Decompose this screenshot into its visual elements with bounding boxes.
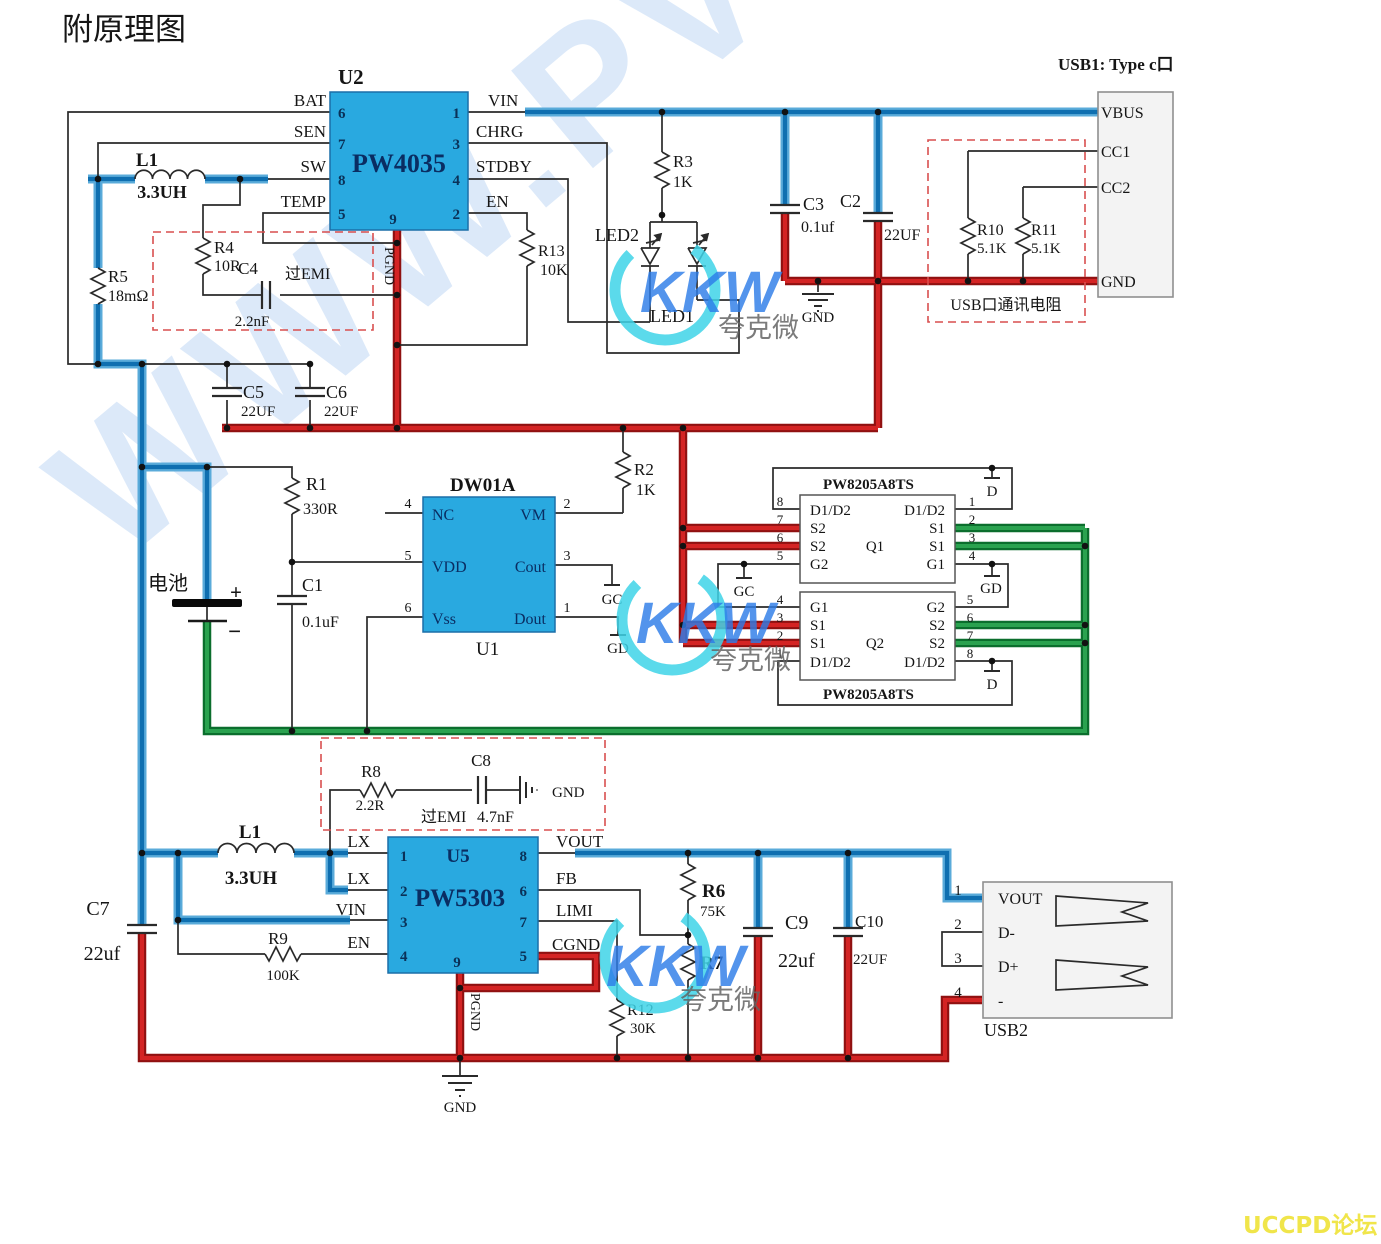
r2-val: 1K xyxy=(636,482,656,499)
u5-pin4-num: 4 xyxy=(400,949,408,965)
c2-val: 22UF xyxy=(884,227,921,244)
r4-ref: R4 xyxy=(214,238,234,257)
u2-pin7-num: 7 xyxy=(338,137,346,153)
u1-pin6-num: 6 xyxy=(405,601,412,616)
u2-pin2-num: 2 xyxy=(453,207,461,223)
q1-pin3: 3 xyxy=(969,530,976,545)
battery-minus: − xyxy=(228,619,241,644)
gnd-top-icon xyxy=(802,294,834,311)
r9-val: 100K xyxy=(266,968,300,984)
gnd-bottom-label: GND xyxy=(444,1100,477,1116)
u5-pin3-num: 3 xyxy=(400,915,408,931)
c4-val: 2.2nF xyxy=(235,314,270,330)
l1-top-val: 3.3UH xyxy=(137,182,187,202)
u5-pin7-num: 7 xyxy=(520,915,528,931)
r11-ref: R11 xyxy=(1031,222,1057,239)
r4-val: 10R xyxy=(214,258,241,275)
u5-ref: U5 xyxy=(446,846,469,867)
q1-pin2: 2 xyxy=(969,512,976,527)
c7-val: 22uf xyxy=(84,943,121,965)
u2-pgnd-label: PGND xyxy=(381,247,396,285)
r6-val: 75K xyxy=(700,904,726,920)
usb2-vout: VOUT xyxy=(998,891,1043,908)
q2-s2b: S2 xyxy=(929,636,945,652)
u2-pin-en: EN xyxy=(486,192,509,211)
kkw-sub-text-3: 夸克微 xyxy=(680,985,761,1015)
c3-val: 0.1uf xyxy=(801,219,835,236)
q1-g1: G1 xyxy=(927,557,945,573)
q2-s1a: S1 xyxy=(810,618,826,634)
q2-pin8: 8 xyxy=(967,646,974,661)
q1-ref: Q1 xyxy=(866,539,884,555)
c8-val: 4.7nF xyxy=(477,809,514,826)
c1-ref: C1 xyxy=(302,575,323,595)
c7-ref: C7 xyxy=(86,898,109,920)
usb1-cc2: CC2 xyxy=(1101,180,1130,197)
l1-bot-val: 3.3UH xyxy=(225,868,277,889)
r9-ref: R9 xyxy=(268,929,288,948)
u2-pin9-num: 9 xyxy=(389,212,397,228)
c9-ref: C9 xyxy=(785,912,808,934)
u5-pin-fb: FB xyxy=(556,869,577,888)
c9-val: 22uf xyxy=(778,950,815,972)
q1-s2b: S2 xyxy=(810,539,826,555)
c6-ref: C6 xyxy=(326,382,347,402)
r2-ref: R2 xyxy=(634,460,654,479)
usb1-title: USB1: Type c口 xyxy=(1058,55,1174,74)
usb1-cc1: CC1 xyxy=(1101,144,1130,161)
u1-pin-vdd: VDD xyxy=(432,559,467,576)
q2-part: PW8205A8TS xyxy=(823,687,914,703)
q1-pin6: 6 xyxy=(777,530,784,545)
r10-ref: R10 xyxy=(977,222,1004,239)
inductor-l1-top xyxy=(135,170,205,179)
u5-pin6-num: 6 xyxy=(520,884,528,900)
kkw-sub-text-1: 夸克微 xyxy=(718,313,799,343)
kkw-watermark-2: KKW 夸克微 xyxy=(602,550,791,689)
q2-pin5: 5 xyxy=(967,592,974,607)
u2-pin8-num: 8 xyxy=(338,173,346,189)
u1-pin5-num: 5 xyxy=(405,549,412,564)
usb2-ref: USB2 xyxy=(984,1020,1028,1040)
gnd-top-label: GND xyxy=(802,310,835,326)
u1-pin4-num: 4 xyxy=(405,497,412,512)
schematic-canvas: WWW.PV xyxy=(0,0,1381,1244)
schematic-page: WWW.PV xyxy=(0,0,1381,1244)
u2-pin-chrg: CHRG xyxy=(476,122,523,141)
u5-pin5-num: 5 xyxy=(520,949,528,965)
q1-pin8: 8 xyxy=(777,494,784,509)
u1-pin-cout: Cout xyxy=(515,559,547,576)
u5-pin-vin: VIN xyxy=(336,900,366,919)
u2-pin3-num: 3 xyxy=(453,137,461,153)
u1-pin3-num: 3 xyxy=(564,549,571,564)
q1-d12-r: D1/D2 xyxy=(904,503,945,519)
c8-ref: C8 xyxy=(471,751,491,770)
r5-ref: R5 xyxy=(108,267,128,286)
u1-pin-vm: VM xyxy=(520,507,546,524)
u5-pin-en: EN xyxy=(347,933,370,952)
q2-pin6: 6 xyxy=(967,610,974,625)
u2-pin-stdby: STDBY xyxy=(476,157,532,176)
emi-top-label: 过EMI xyxy=(285,265,330,283)
q1-part: PW8205A8TS xyxy=(823,477,914,493)
u1-pin-vss: Vss xyxy=(432,611,456,628)
r5-val: 18mΩ xyxy=(108,288,148,305)
q1-s1a: S1 xyxy=(929,521,945,537)
q2-pin3: 3 xyxy=(777,610,784,625)
r1-ref: R1 xyxy=(306,474,327,494)
r3-ref: R3 xyxy=(673,152,693,171)
u5-pin8-num: 8 xyxy=(520,849,528,865)
u2-pin1-num: 1 xyxy=(453,106,461,122)
usb2-minus: - xyxy=(998,993,1003,1010)
d-net-bottom: D xyxy=(987,677,998,693)
page-title: 附原理图 xyxy=(62,12,186,47)
l1-top-ref: L1 xyxy=(136,150,158,171)
usb2-dminus: D- xyxy=(998,925,1015,942)
inductor-l1-bottom xyxy=(218,844,294,854)
usb2-pin3-num: 3 xyxy=(954,951,962,967)
u1-ref: U1 xyxy=(476,639,499,660)
u5-pin-lx1: LX xyxy=(347,832,370,851)
q1-pin5: 5 xyxy=(777,548,784,563)
u1-part: DW01A xyxy=(450,475,516,496)
q1-s1b: S1 xyxy=(929,539,945,555)
r13-ref: R13 xyxy=(538,243,565,260)
usb2-pin2-num: 2 xyxy=(954,917,962,933)
u5-pin1-num: 1 xyxy=(400,849,408,865)
u2-pin-sen: SEN xyxy=(294,122,326,141)
u5-pin-lx2: LX xyxy=(347,869,370,888)
q1-d12-l: D1/D2 xyxy=(810,503,851,519)
c2-ref: C2 xyxy=(840,191,861,211)
c10-val: 22UF xyxy=(853,952,887,968)
u2-pin6-num: 6 xyxy=(338,106,346,122)
led2-label: LED2 xyxy=(595,225,639,245)
u1-pin1-num: 1 xyxy=(564,601,571,616)
q2-g2: G2 xyxy=(927,600,945,616)
battery-plus: + xyxy=(230,580,242,604)
usb2-dplus: D+ xyxy=(998,959,1019,976)
r10-val: 5.1K xyxy=(977,241,1007,257)
r13-val: 10K xyxy=(540,262,568,279)
q2-pin7: 7 xyxy=(967,628,974,643)
usb-comm-resistor-box xyxy=(928,140,1085,322)
u2-pin-vin: VIN xyxy=(488,91,518,110)
usb-comm-note: USB口通讯电阻 xyxy=(950,296,1061,314)
usb1-vbus: VBUS xyxy=(1101,105,1144,122)
usb1-gnd: GND xyxy=(1101,274,1136,291)
forum-watermark: UCCPD论坛 xyxy=(1243,1212,1377,1239)
r12-val: 30K xyxy=(630,1021,656,1037)
q1-s2a: S2 xyxy=(810,521,826,537)
q1-pin4: 4 xyxy=(969,548,976,563)
battery-label: 电池 xyxy=(148,572,188,595)
q1-pin7: 7 xyxy=(777,512,784,527)
r8-ref: R8 xyxy=(361,762,381,781)
u5-pin-cgnd: CGND xyxy=(552,935,600,954)
usb2-pin1-num: 1 xyxy=(954,883,962,899)
gnd-c8-label: GND xyxy=(552,785,585,801)
q1-g2: G2 xyxy=(810,557,828,573)
gnd-bottom-icon xyxy=(442,1076,478,1096)
c1-val: 0.1uF xyxy=(302,614,339,631)
u2-pin4-num: 4 xyxy=(453,173,461,189)
u1-pin-dout: Dout xyxy=(514,611,547,628)
u2-ref: U2 xyxy=(338,65,364,89)
c5-val: 22UF xyxy=(241,404,275,420)
usb2-pin4-num: 4 xyxy=(954,985,962,1001)
u2-part: PW4035 xyxy=(352,149,446,178)
u5-pin9-num: 9 xyxy=(453,955,461,971)
u5-part: PW5303 xyxy=(415,885,505,912)
q2-g1: G1 xyxy=(810,600,828,616)
u1-pin2-num: 2 xyxy=(564,497,571,512)
gnd-c8-icon xyxy=(520,776,537,804)
l1-bot-ref: L1 xyxy=(239,822,261,843)
u5-pgnd-label: PGND xyxy=(467,993,482,1031)
emi-bottom-label: 过EMI xyxy=(421,808,466,826)
q2-s1b: S1 xyxy=(810,636,826,652)
c10-ref: C10 xyxy=(855,912,883,931)
q1-pin1: 1 xyxy=(969,494,976,509)
r6-ref: R6 xyxy=(702,881,725,902)
q2-pin4: 4 xyxy=(777,592,784,607)
u2-pin5-num: 5 xyxy=(338,207,346,223)
u2-pin-sw: SW xyxy=(301,157,327,176)
u5-pin2-num: 2 xyxy=(400,884,408,900)
d-net-top: D xyxy=(987,484,998,500)
q2-pin2: 2 xyxy=(777,628,784,643)
u1-pin-nc: NC xyxy=(432,507,454,524)
u5-pin-vout: VOUT xyxy=(556,832,604,851)
r3-val: 1K xyxy=(673,174,693,191)
q2-ref: Q2 xyxy=(866,636,884,652)
q2-d12-l: D1/D2 xyxy=(810,655,851,671)
c4-ref: C4 xyxy=(238,259,258,278)
gd-net-2: GD xyxy=(980,581,1002,597)
q2-s2a: S2 xyxy=(929,618,945,634)
r1-val: 330R xyxy=(303,501,338,518)
c6-val: 22UF xyxy=(324,404,358,420)
kkw-watermark-3: KKW 夸克微 xyxy=(585,888,761,1027)
kkw-sub-text-2: 夸克微 xyxy=(710,645,791,675)
r8-val: 2.2R xyxy=(356,798,385,814)
u5-pin-limi: LIMI xyxy=(556,901,593,920)
r11-val: 5.1K xyxy=(1031,241,1061,257)
u2-pin-bat: BAT xyxy=(294,91,327,110)
c3-ref: C3 xyxy=(803,194,824,214)
c5-ref: C5 xyxy=(243,382,264,402)
q2-d12-r: D1/D2 xyxy=(904,655,945,671)
u2-pin-temp: TEMP xyxy=(281,192,326,211)
